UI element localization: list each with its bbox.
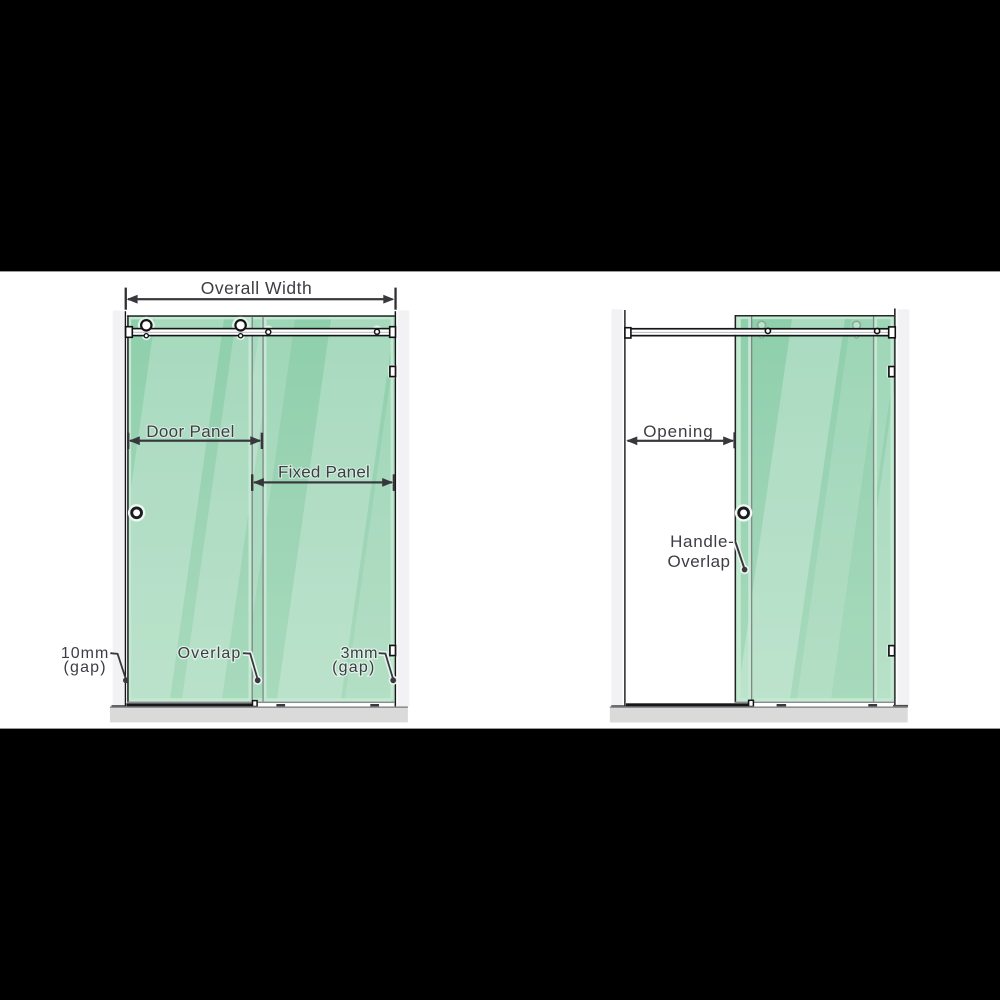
svg-text:(gap): (gap) (332, 659, 375, 676)
svg-text:Door Panel: Door Panel (146, 422, 234, 441)
svg-text:Opening: Opening (643, 422, 713, 441)
svg-text:Fixed Panel: Fixed Panel (278, 463, 370, 482)
svg-text:(gap): (gap) (63, 659, 106, 676)
svg-text:Overlap: Overlap (178, 645, 242, 662)
svg-text:Overlap: Overlap (667, 552, 730, 571)
svg-text:Handle-: Handle- (670, 532, 734, 551)
svg-text:Overall Width: Overall Width (201, 278, 313, 298)
